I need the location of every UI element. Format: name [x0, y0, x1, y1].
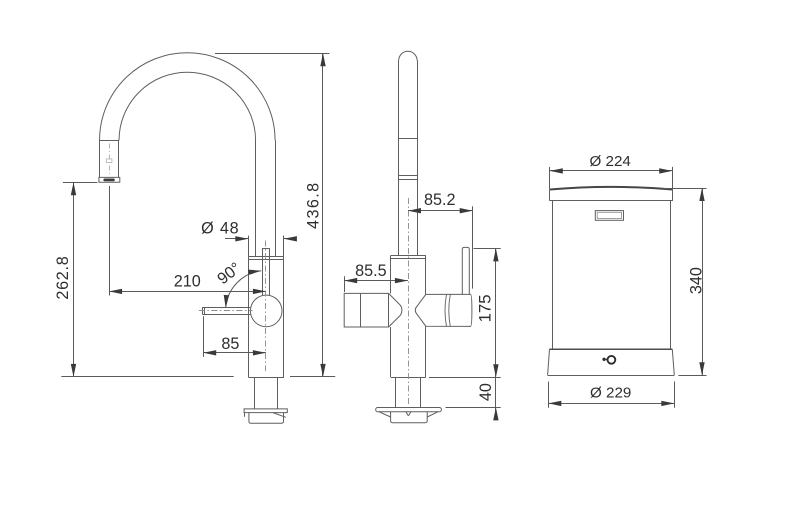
svg-text:Ø 224: Ø 224 [590, 153, 631, 170]
svg-text:90°: 90° [214, 259, 244, 288]
svg-text:175: 175 [475, 294, 494, 322]
svg-text:85: 85 [221, 335, 239, 353]
svg-text:85.5: 85.5 [355, 262, 387, 280]
svg-text:Ø 229: Ø 229 [590, 384, 631, 401]
svg-text:210: 210 [174, 273, 201, 291]
svg-text:262.8: 262.8 [54, 256, 72, 300]
svg-text:340: 340 [687, 267, 705, 294]
svg-text:85.2: 85.2 [424, 191, 456, 209]
svg-text:436.8: 436.8 [305, 181, 323, 229]
svg-text:40: 40 [477, 383, 495, 401]
svg-text:Ø 48: Ø 48 [201, 219, 239, 237]
